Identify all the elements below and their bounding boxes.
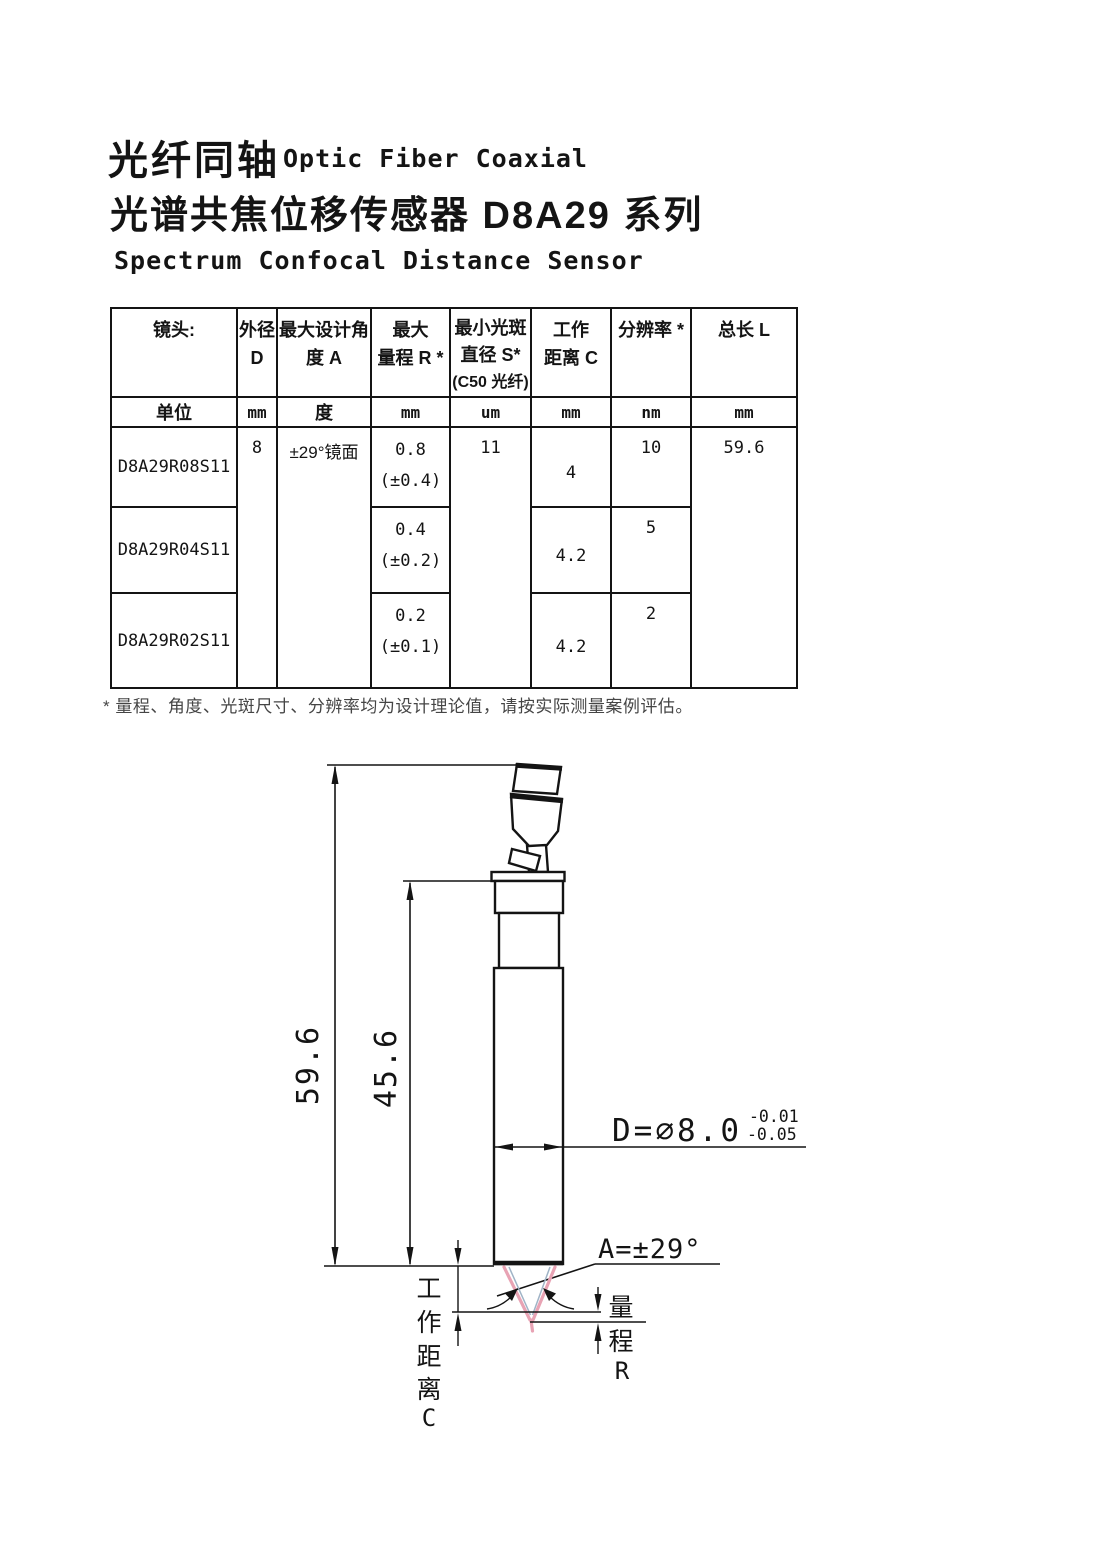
dimension-body-length-text: 45.6 (369, 1028, 404, 1108)
svg-text:作: 作 (416, 1309, 441, 1337)
svg-text:离: 离 (416, 1376, 441, 1404)
table-header-row: 镜头: 外径 D 最大设计角 度 A 最大 量程 R * 最小光斑 直径 S* … (111, 308, 797, 397)
svg-text:程: 程 (608, 1328, 633, 1356)
header-outer-diameter: 外径 D (237, 308, 277, 397)
cell-model-3: D8A29R02S11 (111, 593, 237, 688)
unit-angle: 度 (277, 397, 371, 427)
cell-model-2: D8A29R04S11 (111, 507, 237, 593)
header-working-distance: 工作 距离 C (531, 308, 611, 397)
page-title-english-line1: Optic Fiber Coaxial (283, 144, 588, 173)
svg-text:R: R (615, 1357, 630, 1385)
unit-distance: mm (531, 397, 611, 427)
angle-arc-arrows (487, 1288, 574, 1309)
cell-outer-diameter: 8 (237, 427, 277, 688)
cell-distance-2: 4.2 (531, 507, 611, 593)
unit-spot: um (450, 397, 531, 427)
svg-text:距: 距 (416, 1343, 441, 1371)
cell-range-3: 0.2 (±0.1) (371, 593, 450, 688)
svg-text:工: 工 (416, 1275, 441, 1303)
flange (492, 872, 565, 881)
cell-design-angle: ±29°镜面 (277, 427, 371, 688)
unit-range: mm (371, 397, 450, 427)
dimension-working-distance (455, 1240, 462, 1346)
spec-table: 镜头: 外径 D 最大设计角 度 A 最大 量程 R * 最小光斑 直径 S* … (110, 307, 798, 689)
unit-outer-diameter: mm (237, 397, 277, 427)
fiber-connector-cap-edge (516, 766, 563, 769)
unit-resolution: nm (611, 397, 691, 427)
header-lens: 镜头: (111, 308, 237, 397)
header-range: 最大 量程 R * (371, 308, 450, 397)
diameter-label: D=∅8.0 (612, 1113, 742, 1149)
working-distance-label: 工 作 距 离 C (416, 1275, 441, 1432)
dimension-body-length: 45.6 (369, 881, 414, 1266)
page-title-chinese-line2: 光谱共焦位移传感器 D8A29 系列 (110, 184, 703, 239)
sensor-body (492, 764, 565, 1264)
header-spot-diameter: 最小光斑 直径 S* (C50 光纤) (450, 308, 531, 397)
cell-resolution-1: 10 (611, 427, 691, 507)
cell-model-1: D8A29R08S11 (111, 427, 237, 507)
unit-length: mm (691, 397, 797, 427)
header-total-length: 总长 L (691, 308, 797, 397)
cell-resolution-3: 2 (611, 593, 691, 688)
dimension-range (595, 1287, 602, 1354)
page-title-english-line2: Spectrum Confocal Distance Sensor (114, 246, 644, 275)
cell-spot-diameter: 11 (450, 427, 531, 688)
page-title-chinese-line1: 光纤同轴 (108, 128, 280, 186)
header-design-angle: 最大设计角 度 A (277, 308, 371, 397)
cap-section (495, 881, 563, 913)
dimension-total-length: 59.6 (291, 765, 339, 1266)
cell-total-length: 59.6 (691, 427, 797, 688)
main-tube (494, 968, 563, 1264)
header-resolution: 分辨率 * (611, 308, 691, 397)
cell-range-2: 0.4 (±0.2) (371, 507, 450, 593)
svg-text:量: 量 (608, 1294, 633, 1322)
technical-drawing: 59.6 45.6 (0, 740, 1102, 1480)
table-units-row: 单位 mm 度 mm um mm nm mm (111, 397, 797, 427)
cell-distance-1: 4 (531, 427, 611, 507)
tolerance-lower: -0.05 (747, 1125, 797, 1144)
footnote: * 量程、角度、光斑尺寸、分辨率均为设计理论值，请按实际测量案例评估。 (103, 692, 693, 717)
table-row: D8A29R08S11 8 ±29°镜面 0.8 (±0.4) 11 4 10 … (111, 427, 797, 507)
cell-range-1: 0.8 (±0.4) (371, 427, 450, 507)
svg-text:C: C (422, 1404, 436, 1432)
cell-resolution-2: 5 (611, 507, 691, 593)
range-label: 量 程 R (608, 1294, 633, 1385)
neck-section (499, 913, 559, 968)
tolerance-upper: -0.01 (749, 1107, 799, 1126)
dimension-total-length-text: 59.6 (291, 1025, 326, 1105)
units-label: 单位 (111, 397, 237, 427)
cell-distance-3: 4.2 (531, 593, 611, 688)
datasheet-page: 光纤同轴 Optic Fiber Coaxial 光谱共焦位移传感器 D8A29… (0, 0, 1102, 1559)
angle-label: A=±29° (598, 1234, 702, 1265)
